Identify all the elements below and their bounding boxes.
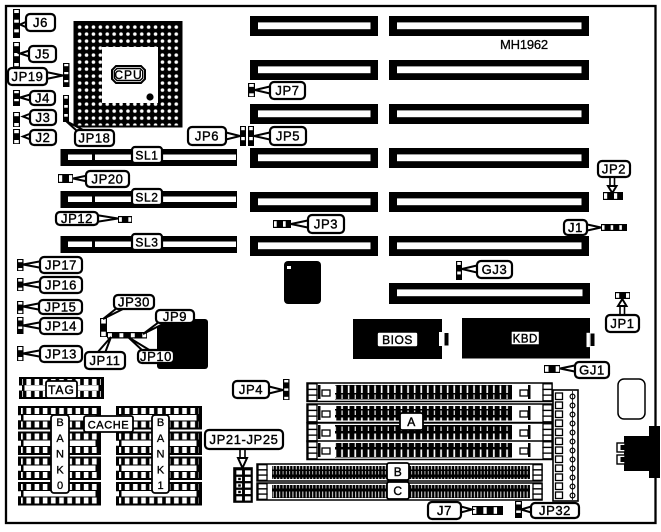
svg-text:JP11: JP11 (89, 353, 120, 368)
svg-text:0: 0 (57, 480, 63, 492)
svg-text:GJ1: GJ1 (579, 363, 605, 378)
svg-text:SL3: SL3 (135, 236, 158, 250)
svg-text:JP9: JP9 (163, 309, 187, 324)
svg-text:SL2: SL2 (135, 191, 158, 205)
svg-text:KBD: KBD (513, 334, 538, 346)
svg-text:TAG: TAG (48, 383, 75, 397)
svg-text:JP17: JP17 (45, 258, 77, 273)
svg-text:JP30: JP30 (118, 295, 150, 310)
svg-text:J4: J4 (35, 91, 50, 106)
svg-text:JP4: JP4 (239, 382, 263, 397)
svg-text:JP12: JP12 (61, 211, 93, 226)
svg-text:N: N (157, 449, 165, 461)
svg-text:JP6: JP6 (195, 129, 219, 144)
svg-text:J7: J7 (437, 503, 452, 518)
svg-text:B: B (56, 417, 63, 429)
svg-text:J1: J1 (568, 220, 583, 235)
svg-text:JP16: JP16 (45, 278, 77, 293)
svg-text:A: A (56, 433, 64, 445)
svg-text:JP5: JP5 (276, 129, 300, 144)
svg-text:C: C (393, 484, 402, 498)
svg-text:BIOS: BIOS (382, 333, 413, 347)
svg-text:JP15: JP15 (44, 300, 76, 315)
svg-text:JP10: JP10 (140, 349, 172, 364)
svg-text:JP21-JP25: JP21-JP25 (210, 432, 279, 447)
svg-text:JP13: JP13 (45, 347, 77, 362)
svg-text:K: K (157, 464, 165, 476)
svg-text:JP3: JP3 (314, 217, 338, 232)
svg-text:1: 1 (157, 480, 163, 492)
svg-text:JP1: JP1 (610, 316, 634, 331)
svg-text:CPU: CPU (114, 68, 142, 82)
svg-text:JP20: JP20 (91, 172, 123, 187)
svg-text:K: K (56, 464, 64, 476)
svg-text:A: A (157, 433, 165, 445)
svg-text:A: A (407, 415, 416, 429)
svg-text:J2: J2 (36, 130, 51, 145)
svg-text:JP14: JP14 (45, 319, 77, 334)
svg-text:SL1: SL1 (135, 149, 158, 163)
svg-text:B: B (157, 417, 164, 429)
svg-text:JP2: JP2 (602, 162, 626, 177)
svg-text:J6: J6 (33, 15, 48, 30)
svg-text:J5: J5 (35, 47, 50, 62)
svg-text:GJ3: GJ3 (482, 262, 508, 277)
svg-text:JP7: JP7 (275, 83, 299, 98)
svg-text:JP18: JP18 (78, 131, 110, 146)
svg-text:CACHE: CACHE (88, 420, 130, 432)
svg-text:J3: J3 (36, 110, 51, 125)
svg-text:JP19: JP19 (11, 69, 43, 84)
svg-text:B: B (394, 465, 403, 479)
svg-text:MH1962: MH1962 (500, 37, 548, 52)
svg-text:JP32: JP32 (539, 503, 571, 518)
svg-text:N: N (56, 449, 64, 461)
